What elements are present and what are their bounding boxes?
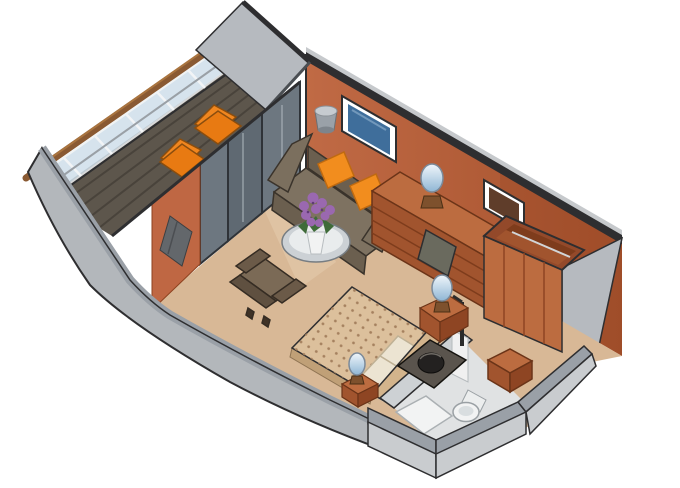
table-lamp-nightstand2 xyxy=(349,353,365,384)
floorplan-illustration xyxy=(0,0,680,488)
sconce-top xyxy=(315,106,337,116)
toilet-seat xyxy=(459,406,474,416)
table-lamp-desk xyxy=(421,164,443,208)
sconce-bottom xyxy=(318,127,334,134)
lamp-shade xyxy=(349,353,365,375)
lamp-base xyxy=(421,196,443,208)
lamp-shade xyxy=(432,275,452,301)
lamp-base xyxy=(434,302,450,312)
lamp-base xyxy=(350,376,364,384)
lamp-shade xyxy=(421,164,443,192)
table-lamp-nightstand xyxy=(432,275,452,312)
floorplan-page xyxy=(0,0,680,488)
wall-sconce-icon xyxy=(315,106,337,134)
